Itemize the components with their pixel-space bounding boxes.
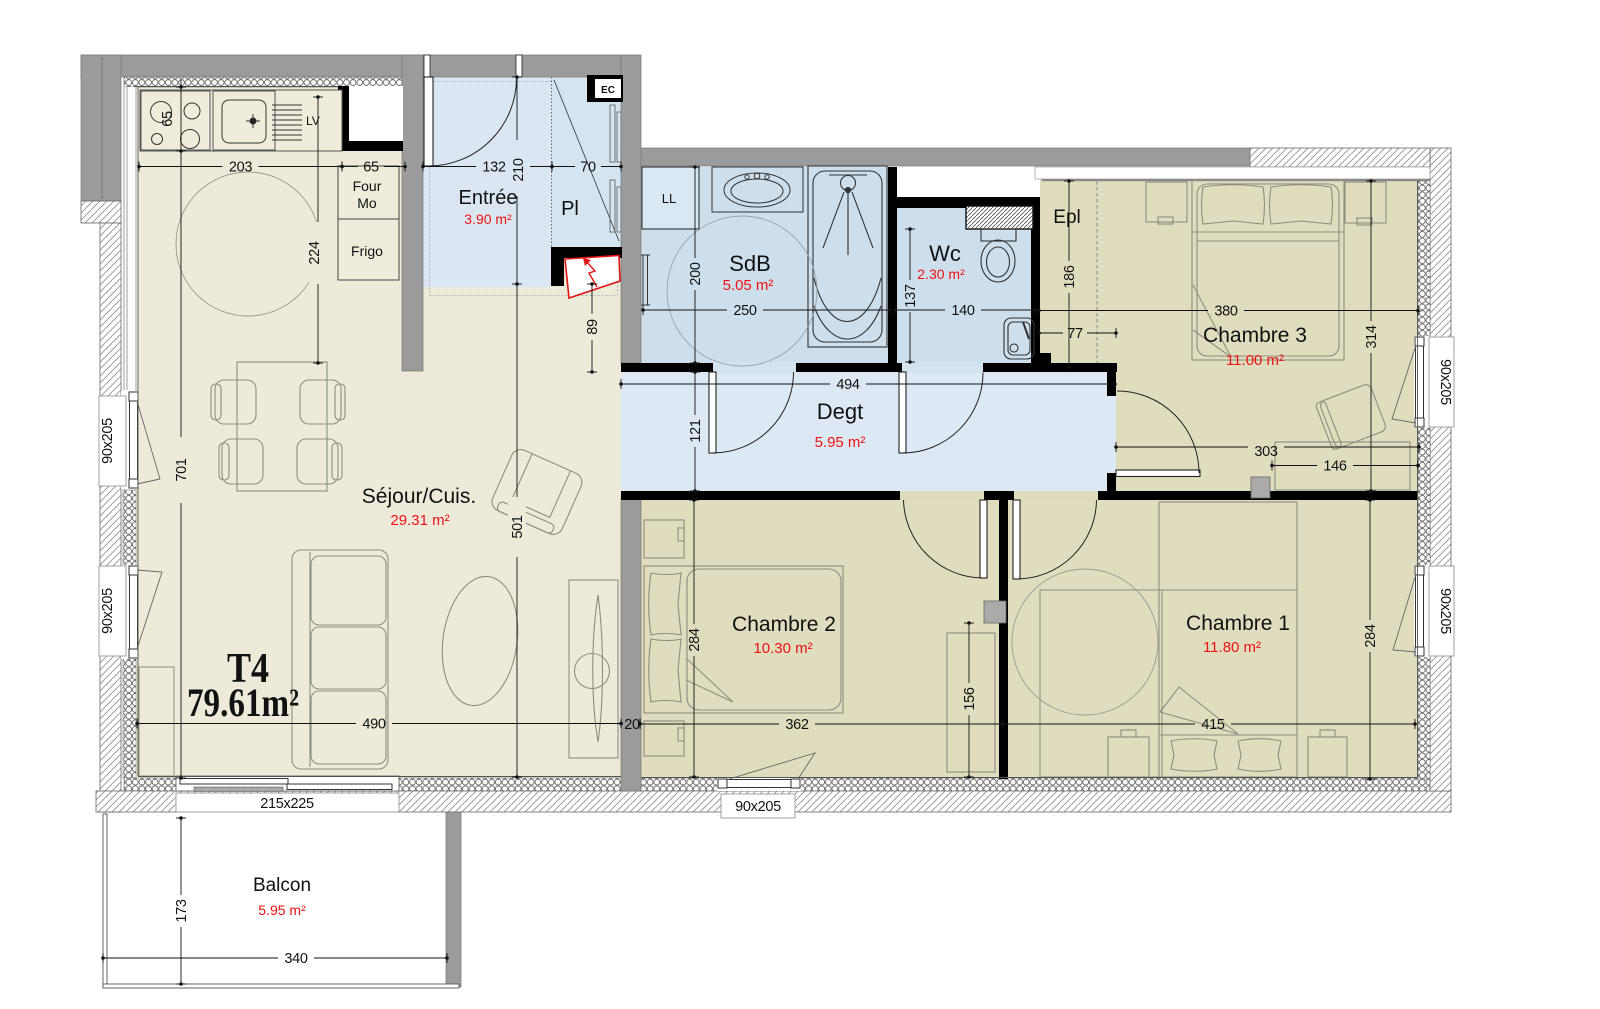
svg-text:Chambre 3: Chambre 3 [1203,324,1307,347]
svg-text:186: 186 [1062,265,1078,289]
svg-text:5.05 m²: 5.05 m² [723,277,774,294]
svg-text:90x205: 90x205 [100,588,116,634]
svg-text:5.95 m²: 5.95 m² [815,434,866,451]
svg-text:11.80 m²: 11.80 m² [1203,639,1261,656]
svg-text:20: 20 [624,717,640,733]
svg-text:494: 494 [836,377,860,393]
svg-text:3.90 m²: 3.90 m² [464,211,512,227]
svg-text:132: 132 [482,160,506,176]
svg-text:501: 501 [510,515,526,539]
svg-text:89: 89 [585,319,601,335]
svg-text:10.30 m²: 10.30 m² [753,640,812,657]
svg-text:224: 224 [307,241,323,265]
svg-text:Four: Four [353,178,382,194]
svg-text:340: 340 [284,951,308,967]
svg-text:250: 250 [733,303,757,319]
svg-text:5.95 m²: 5.95 m² [258,902,306,918]
svg-text:90x205: 90x205 [735,799,781,815]
svg-text:415: 415 [1201,717,1225,733]
svg-text:210: 210 [511,158,527,182]
svg-text:LL: LL [662,191,676,206]
svg-text:Frigo: Frigo [351,243,383,259]
svg-text:77: 77 [1067,326,1083,342]
svg-text:156: 156 [962,687,978,711]
svg-text:137: 137 [903,284,919,308]
svg-text:Mo: Mo [357,195,377,211]
svg-text:11.00 m²: 11.00 m² [1226,352,1284,369]
svg-text:Wc: Wc [929,241,961,266]
svg-text:215x225: 215x225 [260,796,314,812]
svg-text:90x205: 90x205 [100,418,116,464]
svg-text:Epl: Epl [1053,207,1080,228]
svg-text:Chambre 1: Chambre 1 [1186,612,1290,635]
svg-text:29.31 m²: 29.31 m² [390,512,449,529]
svg-text:Entrée: Entrée [459,187,518,209]
svg-text:EC: EC [601,85,615,96]
svg-text:Pl: Pl [561,198,579,220]
svg-text:70: 70 [580,160,596,176]
svg-text:173: 173 [174,899,190,923]
svg-text:Balcon: Balcon [253,875,311,896]
svg-text:200: 200 [688,262,704,286]
svg-text:Chambre 2: Chambre 2 [732,613,836,636]
svg-text:Séjour/Cuis.: Séjour/Cuis. [362,485,476,508]
svg-text:65: 65 [160,111,176,127]
svg-text:701: 701 [174,458,190,482]
svg-text:203: 203 [229,160,253,176]
svg-text:362: 362 [785,717,809,733]
svg-text:380: 380 [1214,304,1238,320]
svg-text:Degt: Degt [817,399,863,424]
svg-text:314: 314 [1364,325,1380,349]
svg-text:146: 146 [1323,459,1347,475]
svg-text:79.61m²: 79.61m² [187,680,299,725]
svg-text:90x205: 90x205 [1437,588,1453,634]
svg-text:284: 284 [687,628,703,652]
svg-text:121: 121 [688,419,704,443]
svg-text:490: 490 [362,717,386,733]
svg-text:2.30 m²: 2.30 m² [917,266,965,282]
svg-text:140: 140 [951,303,975,319]
svg-text:284: 284 [1363,624,1379,648]
svg-text:SdB: SdB [729,251,771,276]
svg-text:90x205: 90x205 [1437,359,1453,405]
svg-text:65: 65 [363,160,379,176]
svg-text:303: 303 [1254,444,1278,460]
